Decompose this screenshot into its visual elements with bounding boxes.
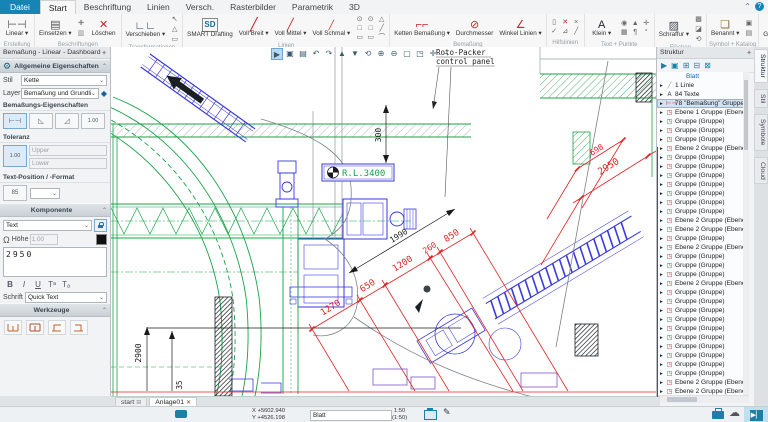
tree-item[interactable]: ▸◳Gruppe (Gruppe) — [657, 171, 749, 180]
down-icon[interactable]: ▼ — [349, 48, 361, 60]
side-tab-struktur[interactable]: Struktur — [754, 49, 768, 83]
copy-view-icon[interactable]: ▤ — [297, 48, 309, 60]
ketten-bemassung-icon: ⌐⌐ — [416, 19, 429, 31]
expand-arrow-icon[interactable]: ▸ — [660, 317, 664, 323]
text-format-select[interactable]: ⌄ — [30, 188, 60, 199]
cad-drawing[interactable]: R.L.3400 Roto-Packer control panel 30019… — [111, 47, 656, 396]
undo-icon[interactable]: ↶ — [310, 48, 322, 60]
column-hatched-right — [575, 324, 598, 356]
einsetzen-icon: ▤ — [50, 19, 60, 31]
grid-icon: ⊞ — [136, 399, 141, 406]
expand-arrow-icon[interactable]: ▸ — [660, 353, 664, 359]
tree-item[interactable]: ▸◳Gruppe (Gruppe) — [657, 324, 749, 333]
group-icon: ◳ — [666, 316, 673, 323]
collapse-icon[interactable]: ⌃ — [102, 207, 107, 214]
ribbon-katalog-icon[interactable]: ▤ — [743, 29, 754, 38]
stil-label: Stil — [3, 77, 19, 84]
group-icon: ◳ — [666, 127, 673, 134]
expand-arrow-icon[interactable]: ▸ — [660, 326, 664, 332]
ribbon-bogen-icon[interactable]: △ — [376, 15, 387, 24]
expand-arrow-icon[interactable]: ▸ — [660, 245, 664, 251]
sheet-name-input[interactable] — [310, 410, 392, 421]
structure-title: Struktur — [660, 49, 684, 56]
ribbon-hilfslinie-loeschen-icon[interactable]: ✕ — [560, 18, 571, 27]
text-icon: A — [666, 92, 673, 98]
tab-beschriftung[interactable]: Beschriftung — [76, 0, 139, 14]
tree-item[interactable]: ▸◳Gruppe (Gruppe) — [657, 342, 749, 351]
klein-icon: A — [598, 19, 605, 31]
expand-arrow-icon[interactable]: ▸ — [660, 281, 664, 287]
expand-arrow-icon[interactable]: ▸ — [660, 200, 664, 206]
color-swatch[interactable] — [96, 234, 107, 245]
expand-arrow-icon[interactable]: ▸ — [660, 299, 664, 305]
group-icon: ◳ — [666, 280, 673, 287]
cursor-coordinates: X +5602.940 Y +4526.198 — [252, 408, 285, 422]
zoom-in-icon[interactable]: ⊕ — [375, 48, 387, 60]
ribbon-linear[interactable]: ⊢⊣Linear ▾ — [2, 15, 32, 41]
medusa-cad-window: Datei StartBeschriftungLinienVersch.Rast… — [0, 0, 768, 422]
text-position-button[interactable]: 85 — [3, 185, 27, 201]
expand-arrow-icon[interactable]: ▸ — [660, 155, 664, 161]
tree-item[interactable]: ▸◳Gruppe (Gruppe) — [657, 306, 749, 315]
tree-item[interactable]: ▸◳Gruppe (Gruppe) — [657, 270, 749, 279]
dim-35: 35 — [175, 380, 184, 389]
schrift-select[interactable]: Quick Text⌄ — [25, 292, 107, 303]
tree-item[interactable]: ▸◳Gruppe (Gruppe) — [657, 180, 749, 189]
subscript-button[interactable]: Tₐ — [61, 280, 71, 289]
pen-icon[interactable]: ✎ — [443, 407, 451, 418]
expand-arrow-icon[interactable]: ▸ — [660, 110, 664, 116]
group-icon: ◳ — [666, 388, 673, 395]
underline-button[interactable]: U — [33, 280, 43, 289]
tool-chain-dim[interactable] — [4, 320, 22, 335]
hoehe-label: Höhe — [12, 236, 28, 243]
ribbon-absatz-icon[interactable]: ¶ — [630, 28, 641, 37]
tree-item[interactable]: ▸◳Gruppe (Gruppe) — [657, 117, 749, 126]
bottom-equipment — [373, 369, 557, 389]
linear-icon: ⊢⊣ — [7, 19, 26, 31]
group-icon: ◳ — [666, 361, 673, 368]
expand-arrow-icon[interactable]: ▸ — [660, 119, 664, 125]
roto-packer-note: Roto-Packer control panel — [432, 48, 495, 197]
tree-item[interactable]: ▸◳Gruppe (Gruppe) — [657, 315, 749, 324]
ribbon-loeschen[interactable]: ✕Löschen — [89, 15, 119, 41]
tree-item[interactable]: ▸◳Ebene 2 Gruppe (Ebene 2 Gruppe) — [657, 243, 749, 252]
tree-item[interactable]: ▸◳Ebene 2 Gruppe (Ebene 2 Gruppe) — [657, 144, 749, 153]
file-menu-button[interactable]: Datei — [0, 0, 40, 14]
chevron-down-icon: ⌄ — [99, 294, 104, 301]
sheet-frame — [540, 47, 656, 74]
ribbon-transform-dreieck-icon[interactable]: △ — [169, 25, 180, 34]
expand-arrow-icon[interactable]: ▸ — [660, 389, 664, 395]
tree-item[interactable]: ▸⊢⊣78 "Bemaßung" Gruppen — [657, 99, 749, 108]
panel-toggle-icon[interactable]: ▶▏ — [750, 410, 763, 421]
bemassungs-eigenschaften-header: Bemaßungs-Eigenschaften — [0, 99, 110, 111]
structure-collapse-all-icon[interactable]: ⊠ — [704, 61, 711, 70]
ribbon-rechteck-2-icon[interactable]: □ — [365, 24, 376, 33]
coord-x: X +5602.940 — [252, 408, 285, 415]
ribbon-voll-mittel[interactable]: ╱Voll Mittel ▾ — [273, 16, 309, 42]
tree-item[interactable]: ▸◳Ebene 2 Gruppe (Ebene 2 Gruppe) — [657, 279, 749, 288]
expand-arrow-icon[interactable]: ▸ — [660, 137, 664, 143]
ribbon-raster-icon[interactable]: ▦ — [619, 28, 630, 37]
tree-item[interactable]: ▸◳Ebene 2 Gruppe (Ebene 2 Gruppe) — [657, 225, 749, 234]
group-icon: ◳ — [666, 379, 673, 386]
chevron-down-icon: ⌄ — [91, 90, 96, 97]
group-icon: ◳ — [666, 334, 673, 341]
tool-leader-dim[interactable] — [70, 320, 88, 335]
side-tab-symbole[interactable]: Symbole — [754, 114, 768, 150]
winkel-linien-icon: ∠ — [516, 19, 526, 31]
tree-item[interactable]: ▸◳Gruppe (Gruppe) — [657, 333, 749, 342]
group-icon: ◳ — [666, 352, 673, 359]
ribbon-flaeche-teil-icon[interactable]: ◪ — [693, 25, 704, 34]
expand-arrow-icon[interactable]: ▸ — [660, 191, 664, 197]
tree-item[interactable]: ▸◳Ebene 1 Gruppe (Ebene 1 Gruppe) — [657, 108, 749, 117]
benannt-icon: ❏ — [720, 19, 730, 31]
cloud-icon[interactable]: ☁ — [729, 406, 740, 419]
line-icon: ╱ — [666, 82, 673, 89]
group-icon: ◳ — [666, 217, 673, 224]
dim-2950: 2950 — [596, 156, 621, 178]
toleranz-header: Toleranz — [0, 131, 110, 143]
ribbon-kreis-icon[interactable]: ⊙ — [354, 15, 365, 24]
save-view-icon[interactable]: ▣ — [284, 48, 296, 60]
group-icon: ◳ — [666, 343, 673, 350]
text-position-header: Text-Position / -Format — [0, 171, 110, 183]
layer-icon[interactable]: ◆ — [101, 89, 107, 98]
ribbon-verschieben[interactable]: ∟∟Verschieben ▾ — [124, 17, 168, 43]
corner-icon[interactable]: ¬ — [440, 48, 452, 60]
tower-machine — [276, 161, 298, 207]
tree-item[interactable]: ▸◳Gruppe (Gruppe) — [657, 252, 749, 261]
group-icon: ◳ — [666, 325, 673, 332]
italic-button[interactable]: I — [19, 280, 29, 289]
group-icon: ◳ — [666, 244, 673, 251]
dim-850: 850 — [442, 228, 461, 245]
group-icon: ◳ — [666, 307, 673, 314]
tab-rasterbilder[interactable]: Rasterbilder — [222, 0, 284, 14]
tree-vertical-scrollbar[interactable] — [743, 72, 749, 396]
expand-arrow-icon[interactable]: ▸ — [660, 128, 664, 134]
dim-style-slope-left-button[interactable]: ◺ — [29, 113, 53, 129]
ribbon-hilfslinie-ok-icon[interactable]: ✓ — [549, 27, 560, 36]
ribbon-kreis-2-icon[interactable]: ⊙ — [365, 15, 376, 24]
ribbon-ketten-bemassung[interactable]: ⌐⌐Ketten Bemaßung ▾ — [392, 15, 452, 41]
dim-1990: 1990 — [388, 227, 409, 245]
gear-icon[interactable]: ⚙ — [3, 62, 11, 71]
ribbon-transform-pfeil-icon[interactable]: ↖ — [169, 15, 180, 24]
zoom-out-icon[interactable]: ⊖ — [388, 48, 400, 60]
ribbon-transform-rechteck-icon[interactable]: ▭ — [169, 35, 180, 44]
flow-arrow — [162, 70, 206, 107]
ribbon-schraffur[interactable]: ▨Schraffur ▾ — [657, 17, 691, 43]
structure-pick-icon[interactable]: ▶ — [661, 61, 667, 70]
dim-698: 698 — [588, 142, 605, 157]
zoom-fit-icon[interactable]: ◳ — [414, 48, 426, 60]
toolbox-icon[interactable] — [712, 411, 724, 419]
lock-icon[interactable] — [94, 219, 107, 232]
structure-expand-all-icon[interactable]: ⊞ — [683, 61, 690, 70]
dim-2900: 2900 — [134, 343, 143, 362]
dim-1270: 1270 — [319, 298, 343, 318]
group-icon: ◳ — [666, 181, 673, 188]
collapse-icon[interactable]: ⌃ — [102, 307, 107, 314]
tree-horizontal-scrollbar[interactable] — [657, 395, 749, 403]
ribbon-punkt-kreuz-icon[interactable]: ✛ — [641, 19, 652, 28]
pin-icon[interactable]: ✦ — [101, 49, 107, 57]
group-icon: ◳ — [666, 163, 673, 170]
ribbon-linie-icon[interactable]: ╱ — [376, 24, 387, 33]
chevron-down-icon: ⌄ — [99, 77, 104, 84]
expand-arrow-icon[interactable]: ▸ — [660, 362, 664, 368]
tool-ordinate-dim[interactable] — [48, 320, 66, 335]
side-tab-strip: StrukturStilSymboleCloud — [754, 47, 768, 408]
ribbon-polylinie-icon[interactable]: ▭ — [354, 33, 365, 42]
structure-toolbar: ▶▣⊞⊟⊠ — [657, 59, 755, 73]
tree-item[interactable]: ▸A84 Texte — [657, 90, 749, 99]
hoehe-input[interactable] — [30, 234, 58, 245]
packer-machine — [290, 239, 352, 307]
expand-arrow-icon[interactable]: ▸ — [660, 209, 664, 215]
ribbon-grad-icon[interactable]: ° — [641, 28, 652, 37]
dims-icon: ⊢⊣ — [666, 100, 673, 107]
group-icon: ◳ — [666, 154, 673, 161]
status-bar: X +5602.940 Y +4526.198 1:50 (1:50) ✎ ☁ … — [0, 406, 768, 422]
expand-arrow-icon[interactable]: ▸ — [660, 263, 664, 269]
group-icon: ◳ — [666, 172, 673, 179]
snap-marker — [415, 286, 431, 314]
schrift-label: Schrift — [3, 294, 23, 301]
structure-copy-icon[interactable]: ▣ — [671, 61, 679, 70]
dim-style-value-button[interactable]: 1.00 — [81, 113, 105, 129]
group-icon: ◳ — [666, 253, 673, 260]
expand-arrow-icon[interactable]: ▸ — [660, 254, 664, 260]
ribbon-hilfslinie-diag-icon[interactable]: ╱ — [571, 27, 582, 36]
up-icon[interactable]: ▲ — [336, 48, 348, 60]
ribbon-symbol-speichern-icon[interactable]: ▣ — [743, 19, 754, 28]
dim-1200: 1200 — [391, 254, 415, 274]
panel-toggle-highlight: ▶▏ — [744, 407, 768, 422]
expand-arrow-icon[interactable]: ▸ — [660, 290, 664, 296]
smart-drafting-icon: SD — [202, 18, 217, 32]
ribbon-beschriftung-liste-icon[interactable]: ▥ — [76, 29, 87, 38]
toleranz-upper-field[interactable]: Upper — [29, 145, 107, 156]
tab-start[interactable]: Start — [40, 0, 76, 14]
ribbon-punkt-dreieck-icon[interactable]: ▲ — [630, 19, 641, 28]
ribbon-durchmesser[interactable]: ⊘Durchmesser — [454, 15, 495, 41]
tree-item[interactable]: ▸◳Gruppe (Gruppe) — [657, 162, 749, 171]
tree-item[interactable]: Blatt — [657, 72, 749, 81]
ribbon-polylinie-2-icon[interactable]: ▭ — [365, 33, 376, 42]
stil-select[interactable]: Kette⌄ — [21, 75, 107, 86]
dim-300: 300 — [374, 128, 383, 143]
ribbon-punkt-kreis-icon[interactable]: ◉ — [619, 19, 630, 28]
tree-item[interactable]: ▸◳Ebene 2 Gruppe (Ebene 2 Gruppe) — [657, 378, 749, 387]
zoom-window-icon[interactable]: ▢ — [401, 48, 413, 60]
dim-260: 260 — [421, 240, 438, 255]
tab-3d[interactable]: 3D — [341, 0, 368, 14]
ribbon-hilfslinie-kreuz-icon[interactable]: × — [571, 18, 582, 27]
structure-panel: Struktur ✦ ▶▣⊞⊟⊠ Blatt▸╱1 Linie▸A84 Text… — [656, 47, 755, 406]
ribbon-rechteck-icon[interactable]: □ — [354, 24, 365, 33]
expand-arrow-icon[interactable]: ▸ — [660, 92, 664, 98]
tree-item[interactable]: ▸◳Gruppe (Gruppe) — [657, 153, 749, 162]
loeschen-icon: ✕ — [99, 19, 108, 31]
ribbon-winkel-linien[interactable]: ∠Winkel Linien ▾ — [497, 15, 543, 41]
omega-icon[interactable]: Ω — [3, 235, 10, 245]
expand-arrow-icon[interactable]: ▸ — [660, 173, 664, 179]
ribbon-collapse-icon[interactable]: ⌃ — [744, 2, 751, 11]
toleranz-button[interactable]: 1.00 — [3, 145, 27, 167]
ribbon-hilfslinie-winkel-icon[interactable]: ⊿ — [560, 27, 571, 36]
rl-label-box: R.L.3400 — [322, 164, 394, 181]
drawing-canvas[interactable]: ▶▣▤↶↷▲▼⟲⊕⊖▢◳✛¬ — [111, 47, 656, 396]
ribbon-voll-breit[interactable]: ╱Voll Breit ▾ — [237, 16, 271, 42]
tab-linien[interactable]: Linien — [139, 0, 178, 14]
ribbon-hilfslinie-v-icon[interactable]: ▯ — [549, 18, 560, 27]
expand-arrow-icon[interactable]: ▸ — [660, 101, 664, 107]
expand-arrow-icon[interactable]: ▸ — [660, 371, 664, 377]
message-bubble-icon[interactable] — [175, 410, 187, 418]
side-tab-cloud[interactable]: Cloud — [754, 157, 768, 185]
durchmesser-icon: ⊘ — [470, 19, 479, 31]
structure-tree: Blatt▸╱1 Linie▸A84 Texte▸⊢⊣78 "Bemaßung"… — [657, 72, 749, 396]
tree-item[interactable]: ▸◳Gruppe (Gruppe) — [657, 207, 749, 216]
dashboard-title: Bemaßung - Linear - Dashboard — [3, 49, 100, 56]
section-allgemeine-eigenschaften[interactable]: ⚙ Allgemeine Eigenschaften ⌃ — [0, 59, 110, 73]
group-icon: ◳ — [666, 298, 673, 305]
bold-button[interactable]: B — [5, 280, 15, 289]
pan-icon[interactable]: ✛ — [427, 48, 439, 60]
select-tool-icon[interactable]: ▶ — [271, 48, 283, 60]
plot-icon[interactable] — [424, 410, 437, 420]
ribbon-klein[interactable]: AKlein ▾ — [587, 15, 617, 41]
expand-arrow-icon[interactable]: ▸ — [660, 164, 664, 170]
expand-arrow-icon[interactable]: ▸ — [660, 146, 664, 152]
group-icon: ◳ — [666, 145, 673, 152]
expand-arrow-icon[interactable]: ▸ — [660, 344, 664, 350]
tab-versch[interactable]: Versch. — [178, 0, 222, 14]
close-icon[interactable]: ✕ — [186, 399, 191, 406]
group-icon: ◳ — [666, 289, 673, 296]
wall-band-right — [540, 73, 656, 177]
group-icon: ◳ — [666, 271, 673, 278]
tree-item[interactable]: ▸◳Gruppe (Gruppe) — [657, 234, 749, 243]
superscript-button[interactable]: Tᵃ — [47, 280, 57, 289]
side-tab-stil[interactable]: Stil — [754, 89, 768, 108]
expand-arrow-icon[interactable]: ▸ — [660, 218, 664, 224]
tree-item[interactable]: ▸◳Gruppe (Gruppe) — [657, 360, 749, 369]
expand-arrow-icon[interactable]: ▸ — [660, 83, 664, 89]
column-hatched-left — [215, 297, 232, 396]
group-icon: ◳ — [666, 208, 673, 215]
pin-icon[interactable]: ✦ — [746, 49, 752, 57]
group-icon: ◳ — [666, 118, 673, 125]
section-komponente[interactable]: Komponente ⌃ — [0, 203, 110, 217]
group-icon: ◳ — [666, 370, 673, 377]
section-werkzeuge[interactable]: Werkzeuge ⌃ — [0, 303, 110, 317]
tree-item[interactable]: ▸◳Gruppe (Gruppe) — [657, 297, 749, 306]
ribbon-beschriftung-plus-icon[interactable]: ✚ — [76, 19, 87, 28]
dim-style-linear-button[interactable]: ⊢⊣ — [3, 113, 27, 129]
tree-item[interactable]: ▸◳Gruppe (Gruppe) — [657, 351, 749, 360]
expand-arrow-icon[interactable]: ▸ — [660, 272, 664, 278]
ribbon-flaeche-update-icon[interactable]: ⟲ — [693, 35, 704, 44]
group-icon: ◳ — [666, 262, 673, 269]
drawing-scale: 1:50 (1:50) — [392, 408, 407, 422]
tree-item[interactable]: ▸◳Gruppe (Gruppe) — [657, 135, 749, 144]
collapse-icon[interactable]: ⌃ — [102, 63, 107, 70]
menubar: Datei StartBeschriftungLinienVersch.Rast… — [0, 0, 768, 15]
coord-y: Y +4526.198 — [252, 415, 285, 422]
refresh-icon[interactable]: ⟲ — [362, 48, 374, 60]
group-icon: ◳ — [666, 109, 673, 116]
structure-collapse-branch-icon[interactable]: ⊟ — [693, 61, 700, 70]
ribbon: ⊢⊣Linear ▾Erstellung▤Einsetzen ▾✚▥✕Lösch… — [0, 14, 768, 48]
toleranz-lower-field[interactable]: Lower — [29, 158, 107, 169]
chevron-down-icon: ⌄ — [84, 222, 89, 229]
redo-icon[interactable]: ↷ — [323, 48, 335, 60]
komponente-type-select[interactable]: Text⌄ — [3, 220, 92, 231]
expand-arrow-icon[interactable]: ▸ — [660, 335, 664, 341]
expand-arrow-icon[interactable]: ▸ — [660, 308, 664, 314]
ribbon-flaeche-voll-icon[interactable]: ▩ — [693, 15, 704, 24]
help-icon[interactable]: ? — [755, 2, 764, 11]
expand-arrow-icon[interactable]: ▸ — [660, 380, 664, 386]
horizontal-conveyor — [111, 204, 411, 272]
dim-style-slope-right-button[interactable]: ◿ — [55, 113, 79, 129]
tree-item[interactable]: ▸╱1 Linie — [657, 81, 749, 90]
black-dimensions — [144, 105, 461, 391]
tree-item[interactable]: ▸◳Gruppe (Gruppe) — [657, 369, 749, 378]
tree-item[interactable]: ▸◳Gruppe (Gruppe) — [657, 288, 749, 297]
ribbon-gruppe-selektiert[interactable]: ❖Gruppe Selektiert — [761, 17, 768, 43]
chevron-down-icon: ⌄ — [52, 190, 57, 197]
ribbon-group-label: Hilfslinien — [549, 39, 582, 47]
group-icon: ◳ — [666, 226, 673, 233]
ribbon-smart-drafting[interactable]: SDSMART Drafting — [185, 16, 235, 42]
tree-item[interactable]: ▸◳Gruppe (Gruppe) — [657, 126, 749, 135]
group-icon: ◳ — [666, 136, 673, 143]
tool-baseline-dim[interactable] — [26, 320, 44, 335]
ribbon-voll-schmal[interactable]: ╱Voll Schmal ▾ — [310, 16, 352, 42]
expand-arrow-icon[interactable]: ▸ — [660, 236, 664, 242]
ribbon-tabs: StartBeschriftungLinienVersch.Rasterbild… — [40, 0, 368, 14]
layer-label: Layer — [3, 90, 19, 97]
expand-arrow-icon[interactable]: ▸ — [660, 227, 664, 233]
canvas-toolbar: ▶▣▤↶↷▲▼⟲⊕⊖▢◳✛¬ — [271, 48, 452, 60]
ribbon-einsetzen[interactable]: ▤Einsetzen ▾ — [37, 15, 74, 41]
tree-item[interactable]: ▸◳Gruppe (Gruppe) — [657, 198, 749, 207]
dashboard-panel: Bemaßung - Linear - Dashboard ✦ ⚙ Allgem… — [0, 47, 111, 396]
ribbon-benannt[interactable]: ❏Benannt ▾ — [709, 15, 741, 41]
tree-item[interactable]: ▸◳Gruppe (Gruppe) — [657, 189, 749, 198]
tree-item[interactable]: ▸◳Gruppe (Gruppe) — [657, 261, 749, 270]
group-icon: ◳ — [666, 199, 673, 206]
expand-arrow-icon[interactable]: ▸ — [660, 182, 664, 188]
ribbon-kurve-icon[interactable]: ⌒ — [376, 33, 387, 42]
group-icon: ◳ — [666, 190, 673, 197]
group-icon: ◳ — [666, 235, 673, 242]
dim-text-area[interactable]: 2950 — [3, 247, 107, 277]
rl-label: R.L.3400 — [342, 169, 385, 179]
dim-650: 650 — [358, 278, 377, 295]
layer-select[interactable]: Bemaßung und Grundlinie⌄ — [21, 88, 99, 99]
tree-item[interactable]: ▸◳Ebene 2 Gruppe (Ebene 2 Gruppe) — [657, 216, 749, 225]
tree-selection-marker — [657, 147, 658, 397]
tab-parametrik[interactable]: Parametrik — [284, 0, 341, 14]
